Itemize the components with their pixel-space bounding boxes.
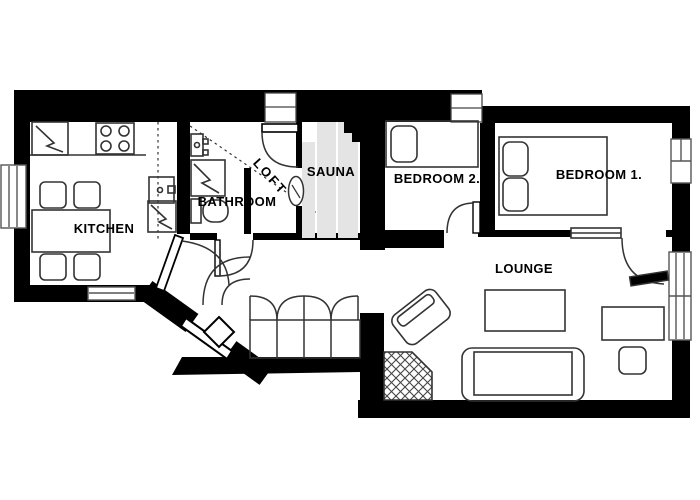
wall-bathroom-bottom-a (190, 233, 217, 240)
label-sauna: SAUNA (307, 164, 355, 179)
door-loft (262, 124, 298, 167)
coffee-table (485, 290, 565, 331)
wall-lounge-left (360, 313, 384, 418)
fridge-symbol (36, 126, 63, 152)
entrance-swing-large (203, 257, 250, 305)
wall-top-left (14, 90, 482, 122)
pillow (391, 126, 417, 162)
fireplace (384, 352, 432, 400)
kitchen-chair (40, 254, 66, 280)
bedroom1-furniture (499, 137, 621, 238)
lounge-furniture (384, 286, 664, 401)
kitchen-chair (74, 182, 100, 208)
wall-kitchen-bathroom (177, 122, 190, 234)
entrance-swing-small (222, 279, 250, 305)
label-kitchen: KITCHEN (74, 221, 135, 236)
bedroom2-furniture (386, 121, 478, 167)
desk (602, 307, 664, 340)
label-bedroom1: BEDROOM 1. (556, 167, 642, 182)
pillow (503, 142, 528, 176)
wall-bedrooms-lounge (478, 230, 575, 237)
sauna-step (352, 133, 360, 142)
window-bedroom1-right (671, 139, 691, 183)
kitchen-chair (74, 254, 100, 280)
armchair (389, 286, 454, 348)
label-bathroom: BATHROOM (198, 194, 277, 209)
sauna-bench-notch (302, 122, 316, 142)
label-bedroom2: BEDROOM 2. (394, 171, 480, 186)
floor-plan-svg: KITCHEN BATHROOM LOFT SAUNA BEDROOM 2. B… (0, 0, 700, 500)
wardrobe-body (250, 320, 360, 358)
kitchen-chair (40, 182, 66, 208)
window-lounge-right (669, 252, 691, 340)
wall-right-upper (672, 106, 690, 140)
wall-top-right (482, 106, 690, 123)
label-lounge: LOUNGE (495, 261, 553, 276)
shower (191, 160, 225, 196)
wardrobe (250, 296, 360, 358)
sauna-step (344, 122, 360, 133)
wall-sauna-bedroom2 (360, 90, 385, 250)
floor-plan: KITCHEN BATHROOM LOFT SAUNA BEDROOM 2. B… (0, 0, 700, 500)
kitchen-fixtures (30, 122, 176, 280)
kitchen-sink (149, 177, 175, 203)
wall-lounge-top-left (384, 230, 444, 248)
shower-symbol (194, 164, 219, 193)
wall-bottom-lounge (358, 400, 690, 418)
wall-bedroom-divider (480, 123, 495, 235)
wall-hall-bottom (172, 357, 360, 375)
stool (619, 347, 646, 374)
wall-bedroom1-corner (666, 230, 674, 237)
wall-right-mid (672, 182, 690, 253)
water-heater (148, 201, 176, 232)
wardrobe-door-swings (250, 296, 358, 320)
water-heater-symbol (151, 205, 172, 229)
sofa (462, 348, 584, 401)
door-bedroom1 (622, 238, 669, 286)
pillow (503, 178, 528, 211)
stove (96, 123, 134, 154)
sauna-bench (317, 122, 336, 238)
bed-single (386, 121, 478, 167)
sliding-door-bedroom1 (571, 228, 621, 238)
window-kitchen-left (1, 165, 26, 228)
label-loft: LOFT (250, 155, 291, 198)
door-bedroom2 (447, 202, 480, 233)
window-kitchen-bottom (88, 287, 135, 300)
fridge (32, 122, 68, 155)
